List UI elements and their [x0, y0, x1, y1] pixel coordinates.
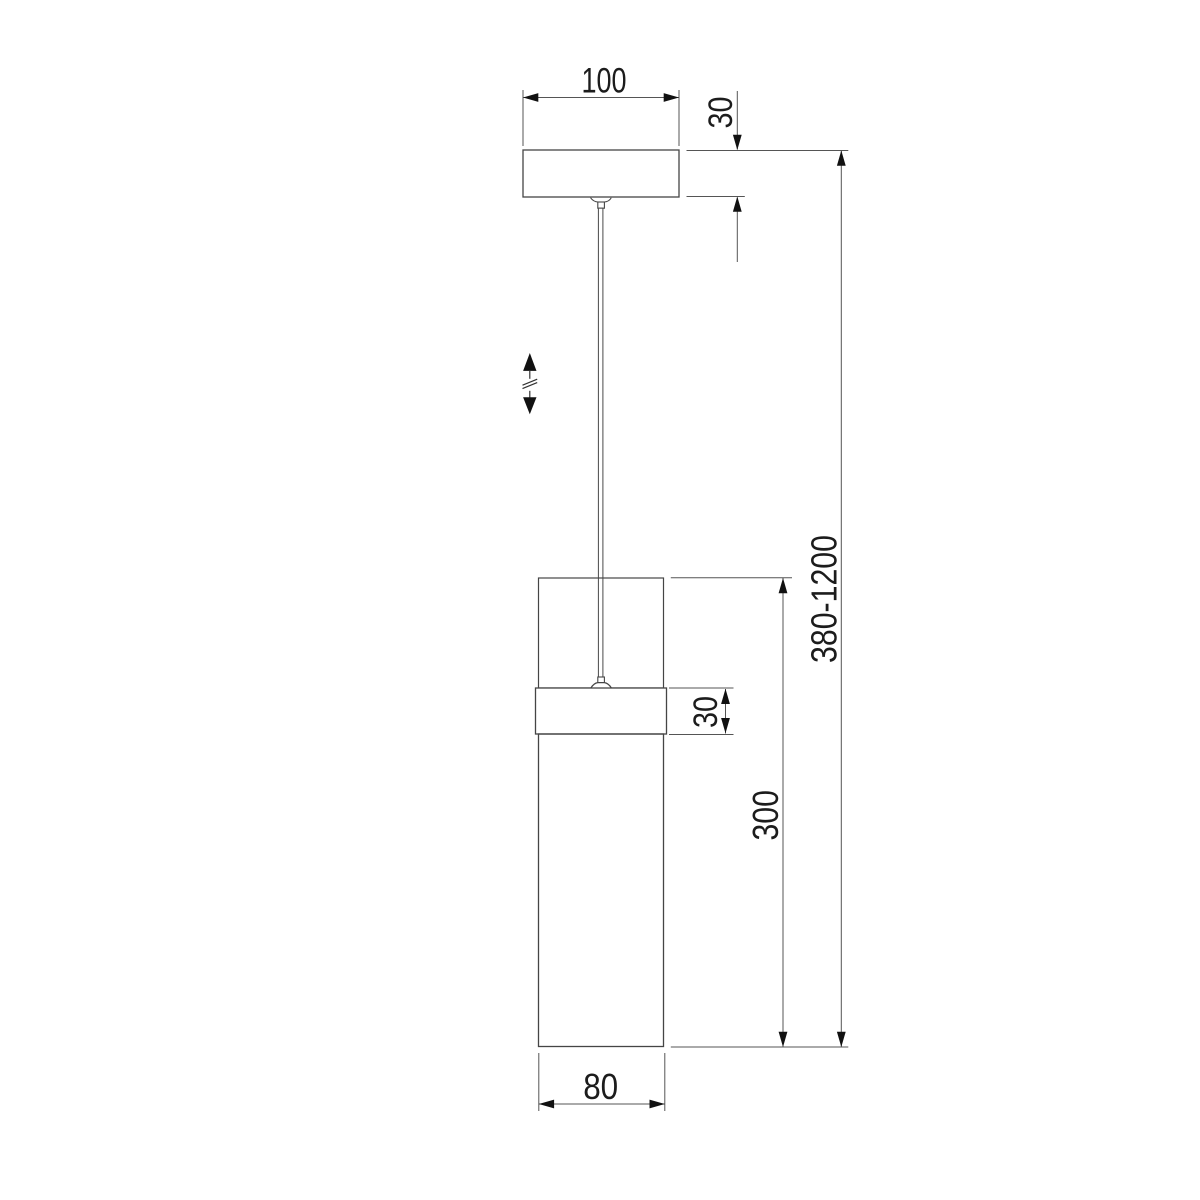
svg-text:30: 30: [702, 97, 740, 129]
svg-text:80: 80: [583, 1066, 618, 1107]
svg-text:300: 300: [745, 790, 786, 841]
svg-text:30: 30: [687, 696, 725, 728]
svg-text:100: 100: [582, 62, 627, 101]
svg-text:380-1200: 380-1200: [804, 535, 845, 663]
